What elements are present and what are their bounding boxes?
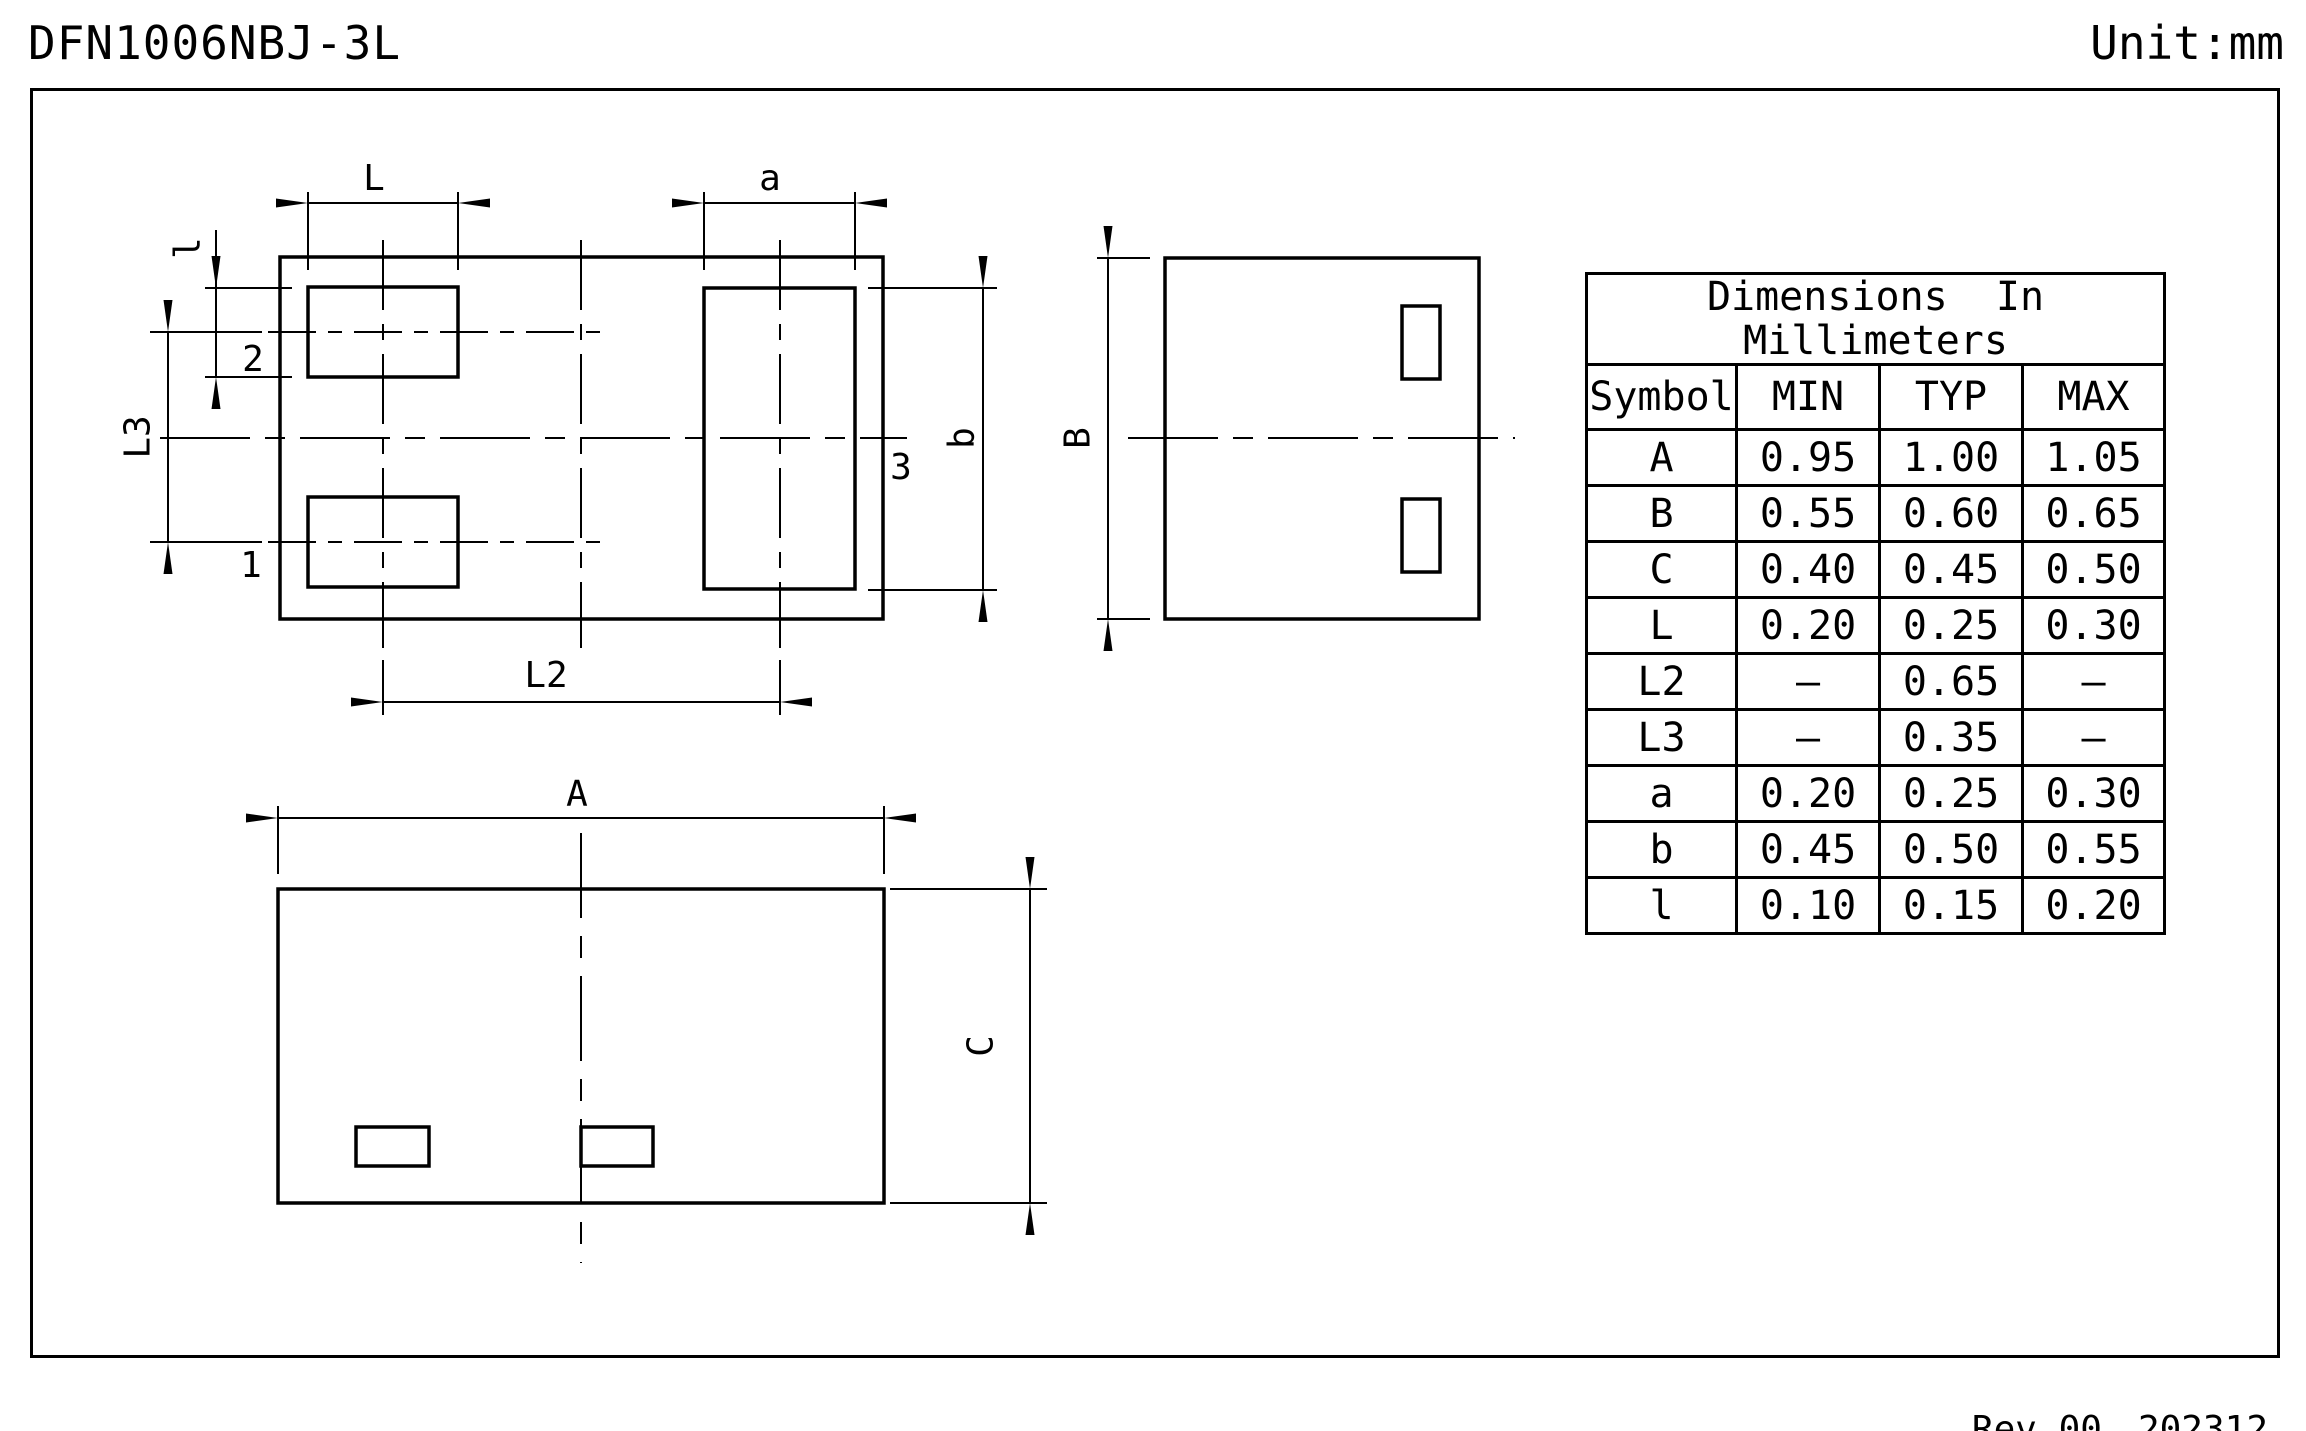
revision-footer: Rev.00202312 xyxy=(1885,1368,2268,1431)
side-view-terminal-upper xyxy=(1402,306,1440,379)
column-header-min: MIN xyxy=(1737,365,1880,430)
cell-typ: 0.25 xyxy=(1880,598,2023,654)
cell-max: 0.55 xyxy=(2023,822,2165,878)
table-row: A 0.95 1.00 1.05 xyxy=(1587,430,2165,486)
dim-label-B: B xyxy=(1058,427,1099,449)
side-view-terminal-lower xyxy=(1402,499,1440,572)
cell-min: 0.20 xyxy=(1737,598,1880,654)
dimensions-table: Dimensions InMillimeters Symbol MIN TYP … xyxy=(1585,272,2163,935)
cell-typ: 0.15 xyxy=(1880,878,2023,934)
dim-label-a: a xyxy=(759,158,781,199)
cell-symbol: A xyxy=(1587,430,1737,486)
cell-max: 0.30 xyxy=(2023,598,2165,654)
cell-symbol: B xyxy=(1587,486,1737,542)
cell-symbol: b xyxy=(1587,822,1737,878)
table-row: B 0.55 0.60 0.65 xyxy=(1587,486,2165,542)
table-header-row: Symbol MIN TYP MAX xyxy=(1587,365,2165,430)
cell-min: – xyxy=(1737,710,1880,766)
dim-label-b: b xyxy=(942,427,983,449)
pin-label-2: 2 xyxy=(242,339,264,380)
column-header-typ: TYP xyxy=(1880,365,2023,430)
column-header-symbol: Symbol xyxy=(1587,365,1737,430)
side-view: B xyxy=(1058,258,1516,619)
cell-typ: 0.60 xyxy=(1880,486,2023,542)
cell-max: 1.05 xyxy=(2023,430,2165,486)
cell-typ: 0.50 xyxy=(1880,822,2023,878)
cell-typ: 0.25 xyxy=(1880,766,2023,822)
cell-typ: 0.45 xyxy=(1880,542,2023,598)
dim-label-A: A xyxy=(566,774,588,815)
cell-typ: 0.35 xyxy=(1880,710,2023,766)
table-title-row: Dimensions InMillimeters xyxy=(1587,274,2165,365)
cell-min: 0.10 xyxy=(1737,878,1880,934)
table-row: a 0.20 0.25 0.30 xyxy=(1587,766,2165,822)
table-row: C 0.40 0.45 0.50 xyxy=(1587,542,2165,598)
cell-symbol: L2 xyxy=(1587,654,1737,710)
table-row: l 0.10 0.15 0.20 xyxy=(1587,878,2165,934)
cell-min: 0.55 xyxy=(1737,486,1880,542)
table-row: L3 – 0.35 – xyxy=(1587,710,2165,766)
cell-min: 0.20 xyxy=(1737,766,1880,822)
cell-typ: 0.65 xyxy=(1880,654,2023,710)
table-title: Dimensions InMillimeters xyxy=(1587,274,2165,365)
cell-min: 0.45 xyxy=(1737,822,1880,878)
dim-label-L: L xyxy=(363,158,385,199)
cell-min: 0.95 xyxy=(1737,430,1880,486)
revision-label: Rev.00 xyxy=(1972,1409,2102,1431)
cell-symbol: C xyxy=(1587,542,1737,598)
cell-symbol: l xyxy=(1587,878,1737,934)
cell-max: – xyxy=(2023,710,2165,766)
cell-symbol: L xyxy=(1587,598,1737,654)
dim-label-l: l xyxy=(168,237,209,259)
table-title-line2: Millimeters xyxy=(1743,318,2008,364)
dim-label-C: C xyxy=(961,1035,1002,1057)
cell-max: 0.65 xyxy=(2023,486,2165,542)
revision-date: 202312 xyxy=(2138,1409,2268,1431)
table-title-line1: Dimensions In xyxy=(1707,274,2044,320)
cell-min: – xyxy=(1737,654,1880,710)
top-view: L a l 2 L3 1 b 3 L2 xyxy=(118,158,998,715)
table-row: b 0.45 0.50 0.55 xyxy=(1587,822,2165,878)
datasheet-page: DFN1006NBJ-3L Unit:mm xyxy=(0,0,2306,1431)
cell-max: 0.20 xyxy=(2023,878,2165,934)
cell-min: 0.40 xyxy=(1737,542,1880,598)
bottom-view-terminal-left xyxy=(356,1127,429,1166)
cell-max: 0.50 xyxy=(2023,542,2165,598)
bottom-view: A C xyxy=(278,774,1047,1263)
cell-max: 0.30 xyxy=(2023,766,2165,822)
cell-max: – xyxy=(2023,654,2165,710)
dim-label-L3: L3 xyxy=(118,415,159,458)
bottom-view-terminal-center xyxy=(581,1127,653,1166)
table-row: L 0.20 0.25 0.30 xyxy=(1587,598,2165,654)
cell-symbol: a xyxy=(1587,766,1737,822)
pin-label-1: 1 xyxy=(240,545,262,586)
cell-typ: 1.00 xyxy=(1880,430,2023,486)
table-row: L2 – 0.65 – xyxy=(1587,654,2165,710)
pin-label-3: 3 xyxy=(890,447,912,488)
column-header-max: MAX xyxy=(2023,365,2165,430)
dim-label-L2: L2 xyxy=(524,655,567,696)
cell-symbol: L3 xyxy=(1587,710,1737,766)
